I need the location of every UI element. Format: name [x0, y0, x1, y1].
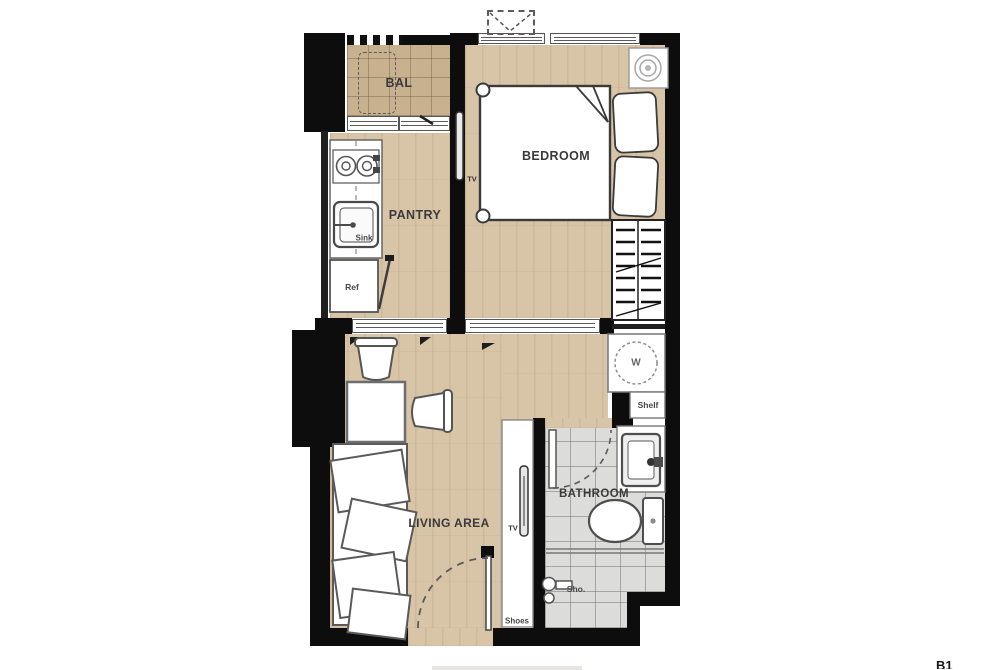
bathroom-label: BATHROOM: [559, 488, 629, 500]
bedroom-label: BEDROOM: [522, 149, 590, 163]
living-area-label: LIVING AREA: [408, 516, 489, 530]
bathroom-door: [549, 430, 611, 488]
pantry-label: PANTRY: [389, 208, 441, 222]
bathroom-sink: [617, 426, 665, 492]
stove: [333, 150, 380, 183]
entrance-door: [418, 556, 491, 630]
shower-partition: [546, 549, 664, 553]
bedroom-tv-label: TV: [467, 175, 477, 184]
shoes-label: Shoes: [505, 617, 529, 626]
dining-table: [347, 382, 405, 442]
chair-top: [355, 338, 397, 380]
toilet: [589, 498, 663, 544]
sink-label: Sink: [356, 234, 373, 243]
washing-machine-label: W: [631, 358, 640, 369]
unit-corner-mark: B1: [936, 658, 953, 669]
pillows: [612, 92, 658, 217]
bedroom-tv: [456, 112, 463, 180]
scale-bar-faint: [432, 666, 582, 670]
slide-mark: [420, 116, 433, 124]
furniture-layer: [0, 0, 1000, 670]
living-tv-label: TV: [508, 524, 518, 533]
floorplan-canvas: BAL PANTRY BEDROOM LIVING AREA BATHROOM …: [0, 0, 1000, 670]
refrigerator-label: Ref: [345, 282, 359, 292]
shower-label: Sho.: [567, 584, 585, 594]
refrigerator: [330, 255, 394, 312]
chair-right: [412, 390, 452, 432]
wardrobe: [612, 220, 665, 320]
sofa: [330, 444, 416, 639]
shelf-label: Shelf: [638, 400, 659, 410]
balcony-label: BAL: [386, 76, 413, 90]
ac-ledge-brace: [490, 13, 532, 31]
nightstand: [629, 48, 668, 88]
